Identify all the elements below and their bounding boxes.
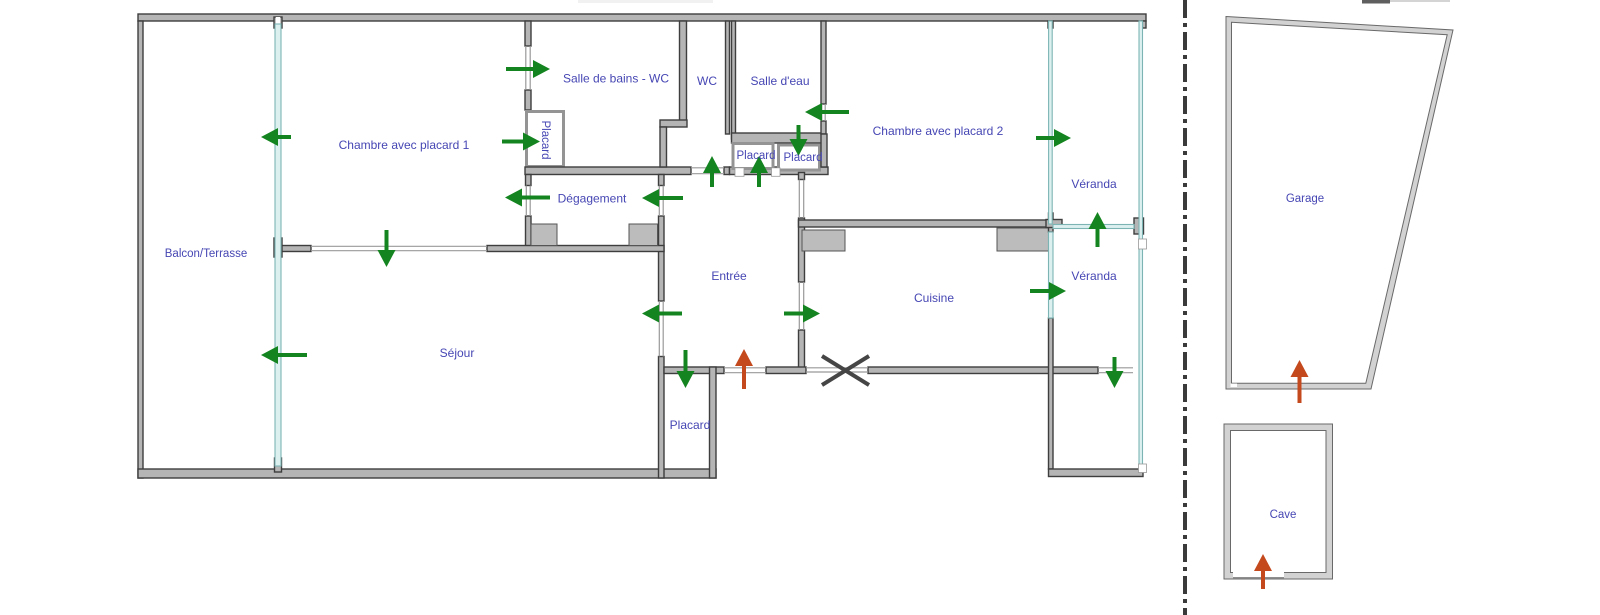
svg-text:Dégagement: Dégagement [558,192,627,206]
svg-text:Cave: Cave [1270,509,1297,521]
svg-text:WC: WC [697,74,717,88]
svg-text:Salle de bains - WC: Salle de bains - WC [563,72,669,86]
svg-text:Véranda: Véranda [1071,269,1117,283]
svg-text:Cuisine: Cuisine [914,291,954,305]
svg-text:Chambre avec placard 1: Chambre avec placard 1 [339,138,470,152]
svg-text:Placard: Placard [670,418,711,432]
svg-text:Véranda: Véranda [1071,177,1117,191]
svg-text:Balcon/Terrasse: Balcon/Terrasse [165,248,247,260]
svg-text:Salle d'eau: Salle d'eau [750,74,809,88]
svg-text:Placard: Placard [539,121,551,160]
svg-text:Entrée: Entrée [711,269,747,283]
svg-text:Séjour: Séjour [440,346,475,360]
svg-text:Placard: Placard [737,150,776,162]
svg-text:Garage: Garage [1286,193,1324,205]
svg-text:Placard: Placard [784,152,823,164]
svg-text:Chambre avec placard 2: Chambre avec placard 2 [873,124,1004,138]
